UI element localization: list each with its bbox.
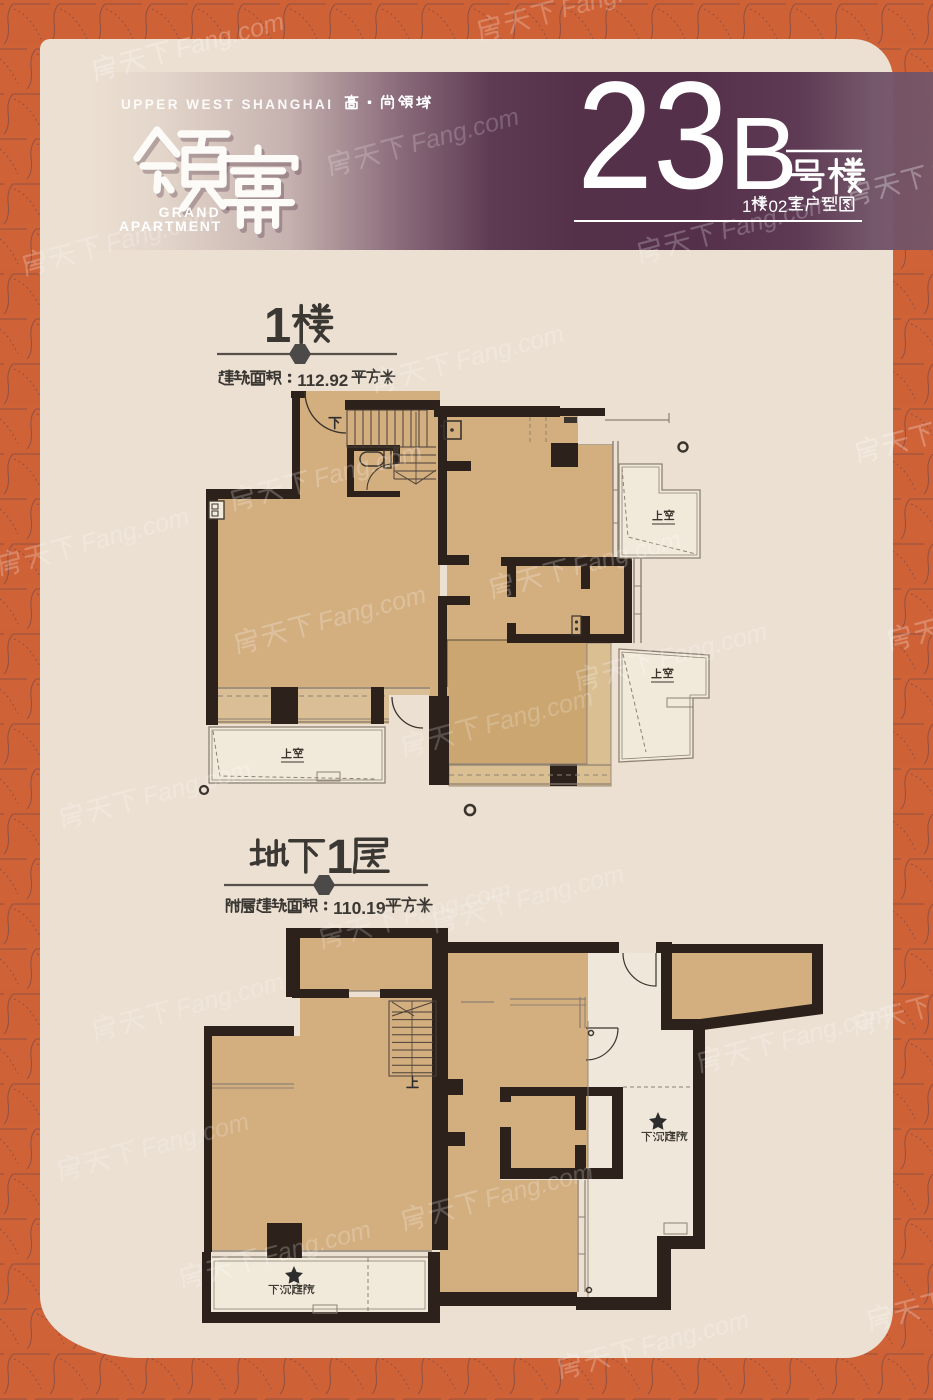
svg-text:23: 23: [577, 50, 729, 221]
svg-text:1: 1: [326, 831, 353, 884]
svg-text:112.92: 112.92: [297, 371, 348, 390]
svg-text:110.19: 110.19: [333, 898, 386, 918]
svg-text:1: 1: [264, 299, 291, 353]
svg-text:B: B: [729, 96, 798, 211]
svg-text:UPPER WEST SHANGHAI: UPPER WEST SHANGHAI: [121, 97, 334, 112]
